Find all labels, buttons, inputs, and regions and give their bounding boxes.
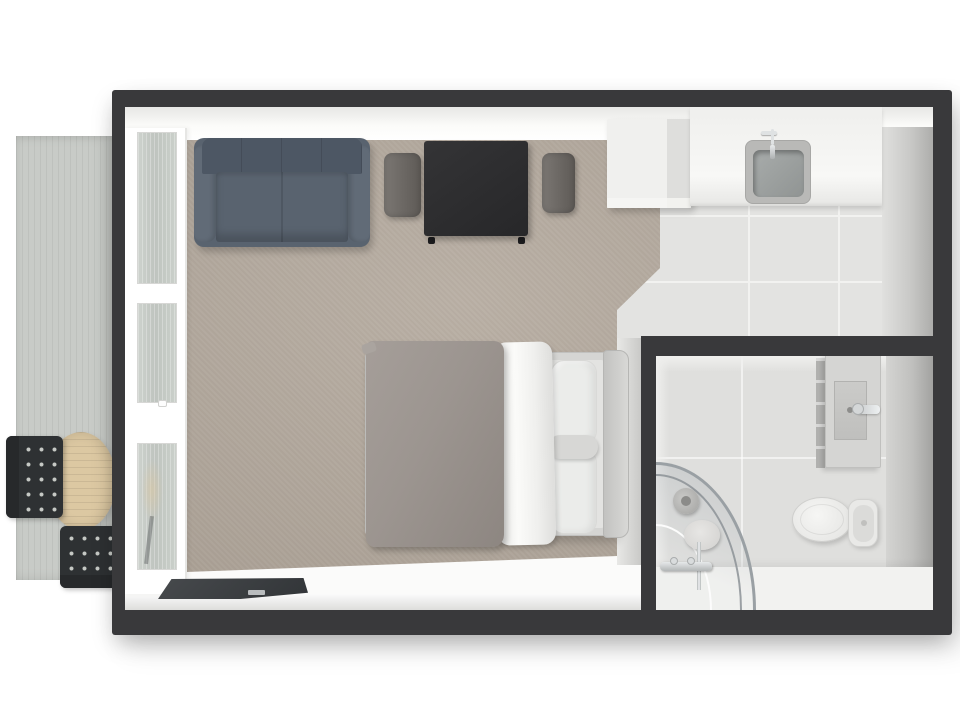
dining-chair-left (384, 153, 421, 217)
kitchen-sink (745, 140, 811, 204)
pillow (551, 450, 597, 534)
shower-seat (684, 520, 720, 550)
duvet (366, 341, 504, 547)
window-glass-top (137, 132, 177, 284)
toilet-flush-button (861, 520, 867, 526)
pillow (551, 360, 597, 444)
chair-perforated-seat (22, 442, 59, 512)
shower-head (673, 488, 699, 514)
table-leg (518, 237, 525, 244)
dining-table (424, 141, 528, 236)
wardrobe-cabinet (607, 119, 691, 208)
window-glass-middle (137, 303, 177, 403)
glass-reflection (144, 516, 154, 564)
bed (358, 338, 630, 550)
toilet-tank (848, 499, 878, 547)
chair-perforated-seat (65, 531, 115, 572)
vanity-wall-mount (816, 358, 825, 468)
glass-reflection (141, 459, 163, 521)
apartment-interior (125, 107, 933, 610)
window-glass-bottom (137, 443, 177, 570)
bolster-pillow (548, 435, 598, 459)
doormat-label (248, 590, 265, 595)
chair-backrest (60, 575, 120, 588)
sofa-seat-cushions (216, 172, 348, 242)
headboard (603, 350, 629, 538)
chair-backrest (6, 436, 19, 518)
bathroom-walls (641, 336, 933, 610)
floor-plan-canvas (0, 0, 960, 720)
faucet-spout (770, 145, 775, 159)
shower-knob (670, 557, 678, 565)
sofa (194, 138, 370, 247)
shower-faucet (660, 562, 712, 571)
vanity-basin (825, 356, 881, 468)
right-wall-face (882, 127, 933, 338)
outdoor-chair-bottom (60, 526, 120, 588)
sofa-backrest (202, 138, 362, 174)
table-leg (428, 237, 435, 244)
tile-grout-line (617, 281, 895, 283)
toilet-bowl (792, 497, 852, 542)
outdoor-chair-left (6, 436, 63, 518)
window-wall (125, 128, 187, 594)
bathroom-interior (656, 356, 933, 610)
sink-basin (753, 150, 804, 197)
shower-knob (687, 557, 695, 565)
faucet-stem (771, 129, 774, 145)
dining-chair-right (542, 153, 575, 213)
faucet-handle (761, 131, 777, 135)
basin-faucet-knob (852, 403, 864, 415)
window-handle (158, 400, 167, 407)
